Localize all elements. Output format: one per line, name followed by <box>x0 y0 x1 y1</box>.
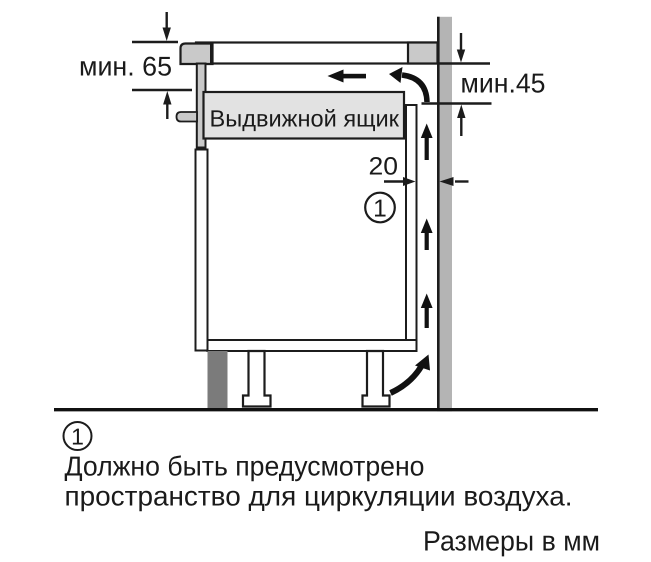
svg-text:пространство для циркуляции во: пространство для циркуляции воздуха. <box>65 481 573 512</box>
svg-text:Должно быть предусмотрено: Должно быть предусмотрено <box>65 451 425 482</box>
svg-text:мин.45: мин.45 <box>461 68 546 99</box>
svg-text:20: 20 <box>369 153 399 181</box>
svg-text:мин. 65: мин. 65 <box>79 52 172 82</box>
svg-text:1: 1 <box>71 424 84 450</box>
svg-text:Размеры в мм: Размеры в мм <box>423 526 600 557</box>
svg-text:1: 1 <box>373 196 387 223</box>
svg-text:Выдвижной ящик: Выдвижной ящик <box>210 106 400 132</box>
